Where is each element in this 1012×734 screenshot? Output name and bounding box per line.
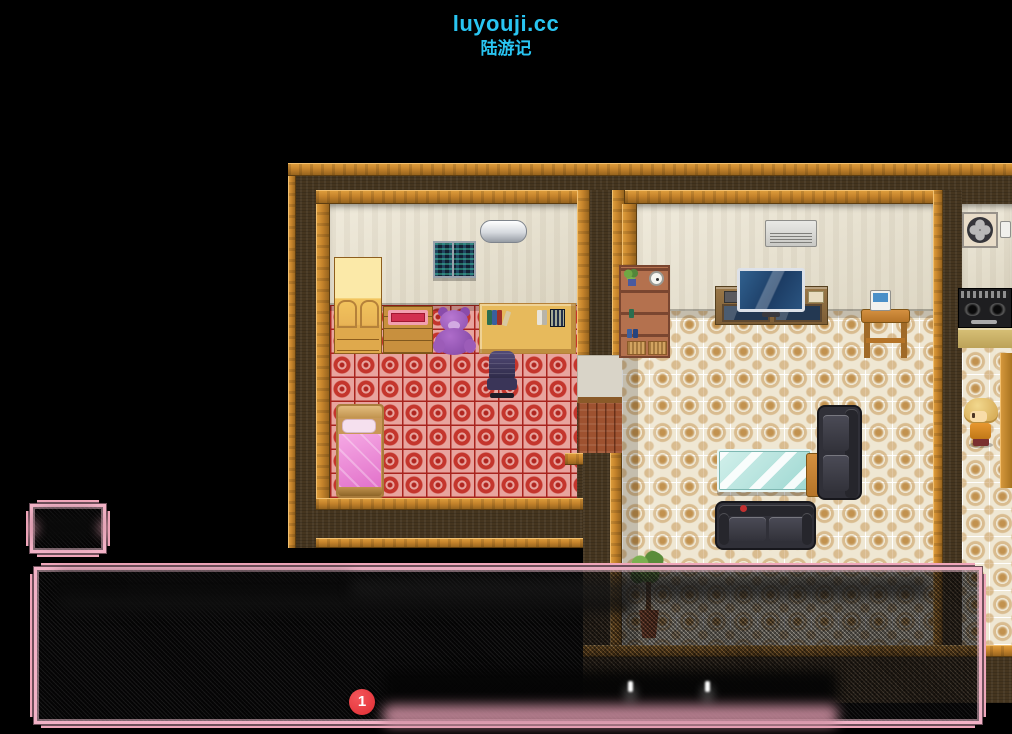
armchair-cushion-top: [823, 415, 849, 451]
red-item: [740, 505, 747, 512]
bed-footboard: [338, 487, 382, 496]
tv-base: [762, 312, 780, 317]
stove-burner-right: [989, 303, 1006, 316]
name-box-blur-pink-right: [100, 520, 112, 536]
wardrobe-doors: [337, 300, 379, 329]
chair-feet: [490, 393, 514, 398]
teddy-bear: [431, 307, 478, 357]
notification-badge[interactable]: 1: [349, 689, 375, 715]
book-leaning: [502, 311, 511, 327]
bedroom-bottom-outer-trim: [316, 538, 601, 548]
book: [542, 310, 547, 325]
bear-paw-left: [433, 339, 445, 353]
couch-arm-left: [719, 513, 729, 545]
dialogue-redacted-line-3: [350, 578, 930, 598]
choice-redacted-pink: [383, 705, 838, 726]
phone: [870, 290, 891, 311]
shelf-basket-left: [627, 341, 646, 355]
living-frame-top: [625, 190, 935, 204]
wardrobe-drawers: [337, 330, 379, 351]
living-air-conditioner: [765, 220, 817, 247]
exhaust-fan: [962, 212, 998, 248]
tv: [737, 268, 805, 312]
fan-blades-icon: [967, 217, 993, 243]
bedroom-bottom-trim: [316, 498, 601, 510]
name-box-blur-pink-left: [24, 520, 36, 536]
stove-handle: [971, 320, 997, 324]
light-speck-right: [705, 681, 710, 692]
stove-grate: [961, 291, 1009, 298]
desk: [479, 303, 576, 354]
office-chair: [486, 351, 518, 400]
npc-blonde: [964, 398, 999, 448]
bedroom-bottom-wall: [316, 510, 601, 538]
name-box-redacted-text: [38, 514, 96, 540]
magazine-rack: [550, 309, 565, 327]
gold-door: [1000, 353, 1012, 488]
shelf-book: [629, 309, 634, 318]
light-speck-left: [628, 681, 633, 692]
stand-item-right: [808, 291, 824, 303]
shelf-book: [627, 329, 632, 338]
couch-back: [719, 505, 814, 516]
shelf-basket-right: [648, 341, 667, 355]
armchair-cushion-bottom: [823, 455, 849, 491]
glass-coffee-table: [717, 449, 812, 492]
door-mat: [577, 355, 624, 403]
map-top-trim: [288, 163, 1012, 176]
wood-doorway: [578, 403, 622, 453]
chair-back: [489, 351, 515, 379]
chair-seat: [487, 378, 517, 390]
couch: [715, 501, 816, 550]
game-title: 陆游记: [0, 38, 1012, 59]
armchair: [817, 405, 862, 500]
bed: [336, 404, 384, 498]
window-night-city: [433, 241, 476, 278]
bed-pillow: [342, 419, 376, 433]
bedroom-frame-left: [316, 204, 330, 512]
couch-arm-right: [802, 513, 812, 545]
kitchen-counter: [958, 328, 1012, 348]
npc-body: [970, 423, 991, 439]
phone-table-shelf: [866, 338, 905, 343]
page-header: luyouji.cc 陆游记: [0, 10, 1012, 59]
wall-clock: [649, 271, 664, 286]
stove-burner-left: [964, 303, 981, 316]
phone-table: [861, 309, 910, 323]
red-tray: [388, 310, 428, 325]
bookshelf: [619, 265, 670, 358]
couch-cushion-right: [769, 517, 806, 541]
shelf-plant-pot: [628, 279, 636, 286]
bear-paw-right: [464, 339, 476, 353]
wardrobe: [334, 257, 382, 354]
shelf-book: [633, 329, 638, 338]
game-screen: luyouji.cc 陆游记: [0, 0, 1012, 734]
corridor-trim-left: [577, 190, 590, 355]
corridor-wall-upper: [590, 190, 612, 355]
bed-headboard: [338, 406, 382, 418]
map-left-trim: [288, 176, 296, 548]
bed-blanket: [339, 434, 381, 487]
bedroom-air-conditioner: [480, 220, 527, 243]
npc-eye: [972, 413, 975, 418]
power-plug: [1000, 221, 1011, 238]
couch-cushion-left: [729, 517, 766, 541]
gas-stove: [958, 288, 1012, 328]
name-box: [26, 500, 110, 557]
npc-legs: [973, 438, 989, 446]
site-name: luyouji.cc: [0, 10, 1012, 38]
bedroom-frame-top: [316, 190, 601, 204]
